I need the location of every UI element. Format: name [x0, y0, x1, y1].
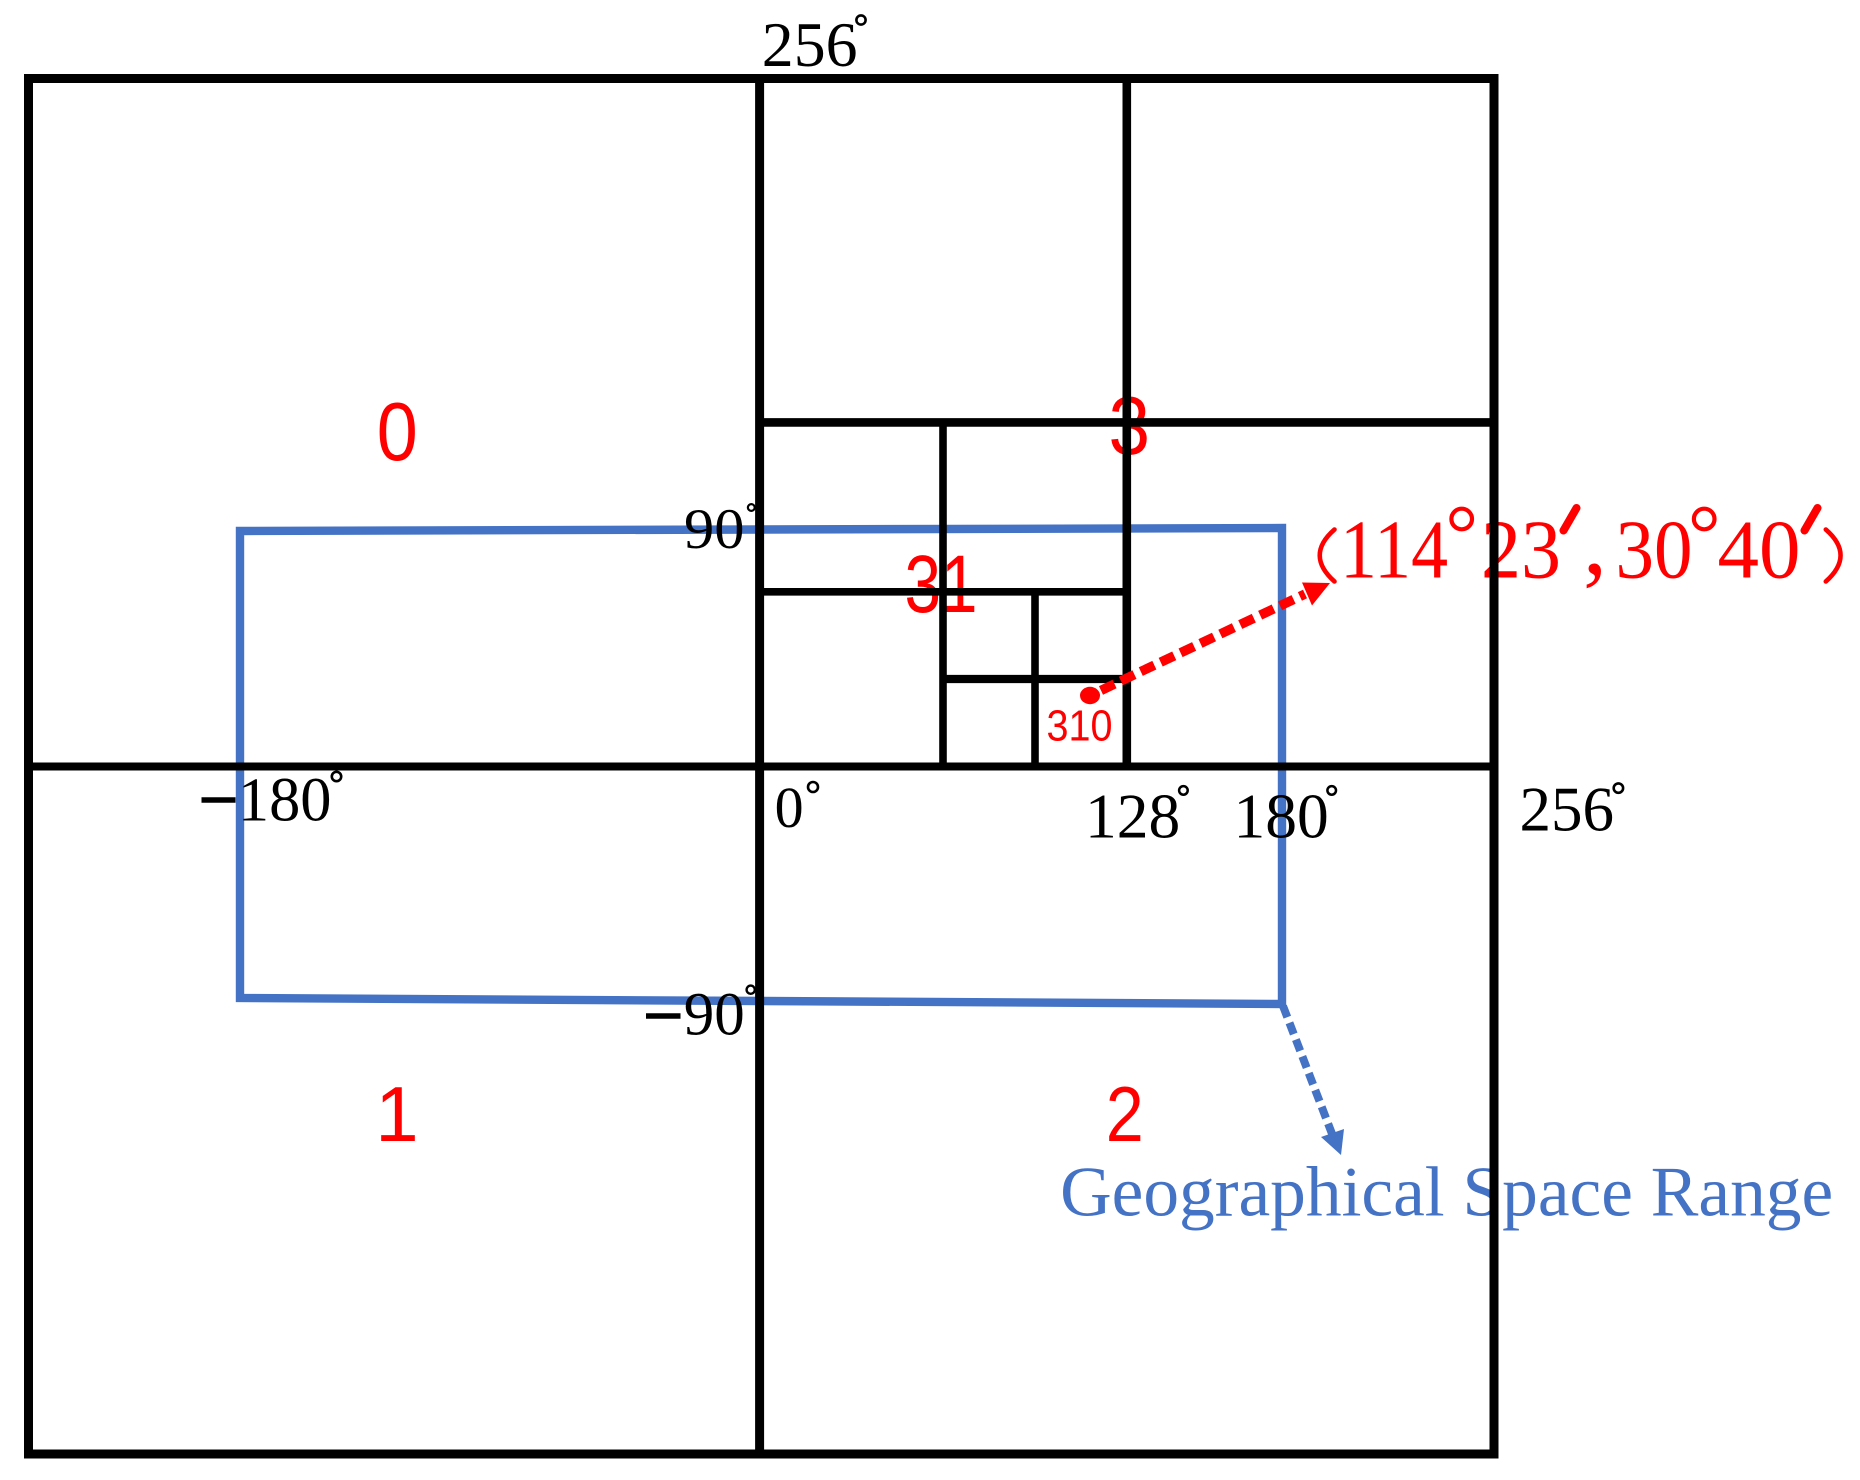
svg-text:256: 256 [1520, 774, 1615, 844]
svg-text:180: 180 [1234, 781, 1329, 852]
svg-text:,: , [1583, 488, 1607, 595]
svg-text:0: 0 [775, 775, 804, 840]
svg-text:256: 256 [762, 9, 858, 80]
svg-text:2: 2 [1106, 1070, 1144, 1158]
svg-text:128: 128 [1085, 781, 1180, 852]
svg-text:Geographical Space Range: Geographical Space Range [1060, 1153, 1833, 1232]
svg-text:0: 0 [377, 385, 418, 478]
svg-text:310: 310 [1047, 703, 1113, 751]
svg-text:180: 180 [238, 766, 332, 835]
svg-text:30: 30 [1616, 505, 1693, 597]
svg-text:90: 90 [684, 498, 745, 561]
svg-text:40: 40 [1718, 505, 1801, 597]
svg-text:90: 90 [684, 981, 745, 1048]
svg-text:1: 1 [375, 1070, 418, 1158]
svg-text:114: 114 [1340, 505, 1448, 597]
